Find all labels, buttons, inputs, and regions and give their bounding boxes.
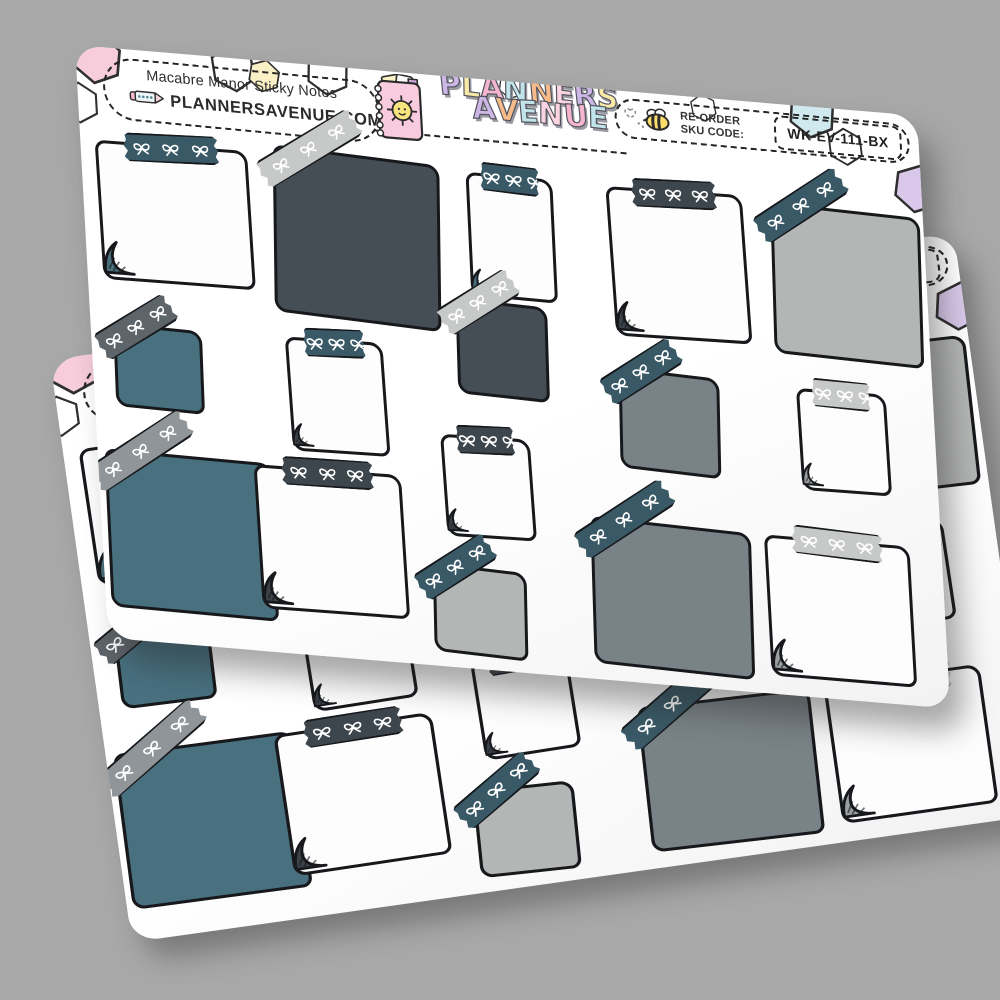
bow-icon [464, 290, 491, 315]
bow-icon [309, 722, 335, 742]
washi-tape [750, 165, 850, 245]
sticky-note-sticker [104, 448, 279, 622]
hexagon-icon [50, 392, 84, 440]
hexagon-decor [75, 80, 102, 131]
brand-letter: A [470, 94, 496, 125]
sticky-note-sticker [796, 388, 892, 497]
bow-icon [480, 168, 502, 187]
bow-icon [482, 777, 511, 804]
corner-curl-icon [480, 727, 512, 757]
bow-icon [504, 758, 533, 785]
reorder-sku-pill: RE-ORDER SKU CODE: WK-EV-111-BX [614, 97, 911, 165]
bow-icon [127, 438, 154, 463]
hexagon-icon [931, 280, 987, 331]
corner-curl-icon [800, 459, 828, 487]
bow-icon [154, 420, 181, 445]
bow-icon [159, 140, 182, 157]
corner-curl [287, 830, 333, 877]
bow-icon [323, 119, 350, 144]
bow-icon [834, 386, 857, 404]
sticky-note-sticker [254, 464, 411, 619]
bow-icon [340, 717, 366, 737]
hexagon-icon [889, 158, 944, 220]
corner-curl [259, 567, 299, 612]
corner-curl-icon [768, 634, 807, 674]
bow-icon [122, 315, 149, 340]
bow-icon [130, 139, 153, 156]
bow-icon [455, 431, 479, 448]
sku-code-box: WK-EV-111-BX [773, 115, 902, 161]
bow-icon [856, 388, 879, 406]
sticky-note-sticker [113, 322, 205, 415]
bow-icon [460, 796, 489, 823]
washi-tape [94, 697, 209, 801]
bow-icon [854, 538, 876, 557]
bow-icon [100, 328, 127, 353]
bow-icon [606, 373, 633, 398]
bow-icon [165, 711, 194, 738]
washi-tape [450, 749, 542, 832]
washi-tape [597, 336, 685, 407]
bee-icon [622, 101, 675, 139]
sticky-note-sticker [770, 202, 924, 369]
bow-icon [632, 713, 661, 740]
bow-icon [662, 186, 685, 203]
bow-icon [100, 457, 127, 482]
bow-icon [658, 690, 687, 717]
washi-tape [302, 328, 365, 359]
sticky-note-sticker [455, 298, 550, 404]
sticky-note-sticker [472, 780, 582, 878]
bow-icon [442, 554, 469, 579]
corner-curl [100, 236, 141, 282]
corner-curl-icon [290, 420, 318, 448]
sku-code: WK-EV-111-BX [787, 125, 889, 150]
washi-tape [85, 408, 195, 495]
washi-tape [630, 178, 717, 211]
brand-letter: U [562, 101, 589, 132]
brand-letter: E [588, 103, 609, 136]
sticky-note-sticker [636, 688, 825, 853]
corner-curl [290, 420, 318, 453]
corner-curl-icon [259, 567, 298, 607]
washi-tape [480, 162, 539, 198]
bow-icon [325, 335, 349, 352]
corner-curl [612, 297, 649, 339]
bow-icon [584, 524, 611, 549]
sticky-note-sticker [95, 140, 256, 291]
bow-icon [443, 304, 470, 329]
notebook-icon [368, 72, 430, 152]
bow-icon [477, 432, 501, 449]
sticky-note-sticker [285, 336, 391, 457]
hexagon-decor [891, 162, 944, 222]
sticky-note-sticker [590, 516, 755, 681]
bow-icon [346, 336, 370, 353]
brand-letter: N [538, 98, 563, 131]
brand-letter: V [495, 95, 519, 128]
bow-icon [486, 276, 513, 301]
bow-icon [188, 142, 211, 159]
washi-tape [571, 477, 677, 561]
bow-icon [344, 466, 367, 483]
sticky-note-sticker [440, 434, 537, 542]
bow-icon [370, 712, 396, 732]
bow-icon [295, 136, 322, 161]
brand-letter: P [438, 70, 463, 101]
bow-icon [826, 535, 848, 554]
reorder-label: RE-ORDER SKU CODE: [680, 110, 745, 142]
corner-curl-icon [836, 778, 881, 820]
washi-tape [791, 524, 882, 564]
corner-curl-icon [309, 679, 341, 709]
bow-icon [635, 185, 658, 202]
bow-icon [812, 384, 835, 402]
sticky-note-sticker [618, 367, 721, 479]
hexagon-decor [50, 392, 85, 445]
sticker-sheet-top: Macabre Manor Sticky Notes PLANNERSAVENU… [75, 45, 950, 709]
bow-icon [137, 735, 166, 762]
brand-logo: PLANNERS AVENUE [423, 68, 635, 137]
brand-letter: E [517, 98, 540, 129]
bow-icon [689, 187, 712, 204]
corner-curl [309, 679, 342, 714]
bow-icon [420, 568, 447, 593]
sticky-note-sticker [764, 534, 917, 687]
bow-icon [463, 540, 490, 565]
bow-icon [316, 464, 339, 481]
washi-tape [811, 378, 870, 413]
hexagon-icon [75, 80, 101, 126]
bow-icon [762, 209, 789, 234]
bow-icon [303, 334, 327, 351]
corner-curl [800, 459, 828, 492]
hexagon-decor [929, 277, 990, 339]
corner-curl [444, 505, 472, 538]
bow-icon [637, 489, 664, 514]
washi-tape [411, 531, 499, 602]
crayon-icon [129, 88, 166, 111]
corner-curl [836, 778, 881, 825]
bow-icon [787, 193, 814, 218]
bow-icon [649, 345, 676, 370]
bow-icon [798, 531, 820, 550]
bow-icon [499, 433, 523, 450]
washi-tape [92, 292, 180, 362]
corner-curl-icon [100, 236, 140, 277]
sticky-note-sticker [605, 186, 752, 344]
bow-icon [524, 173, 546, 192]
sticker-sheet-inner: Macabre Manor Sticky Notes PLANNERSAVENU… [75, 45, 950, 709]
bow-icon [288, 463, 311, 480]
bow-icon [267, 153, 294, 178]
sticky-note-sticker [273, 144, 442, 332]
corner-curl-icon [612, 297, 648, 334]
bow-icon [611, 507, 638, 532]
washi-tape [455, 425, 516, 456]
bow-icon [110, 760, 139, 787]
sticky-note-sticker [433, 562, 529, 662]
corner-curl [480, 727, 513, 762]
corner-curl-icon [287, 830, 332, 872]
bow-icon [502, 170, 524, 189]
sticky-note-sticker [273, 712, 452, 877]
bow-icon [144, 301, 171, 326]
bow-icon [627, 359, 654, 384]
product-photo-canvas: Macabre Manor Sticky Notes PLANNERSAVENU… [0, 0, 1000, 1000]
bow-icon [812, 177, 839, 202]
corner-curl [768, 634, 807, 679]
corner-curl-icon [444, 505, 472, 533]
washi-tape [122, 132, 219, 165]
washi-tape [281, 456, 375, 491]
